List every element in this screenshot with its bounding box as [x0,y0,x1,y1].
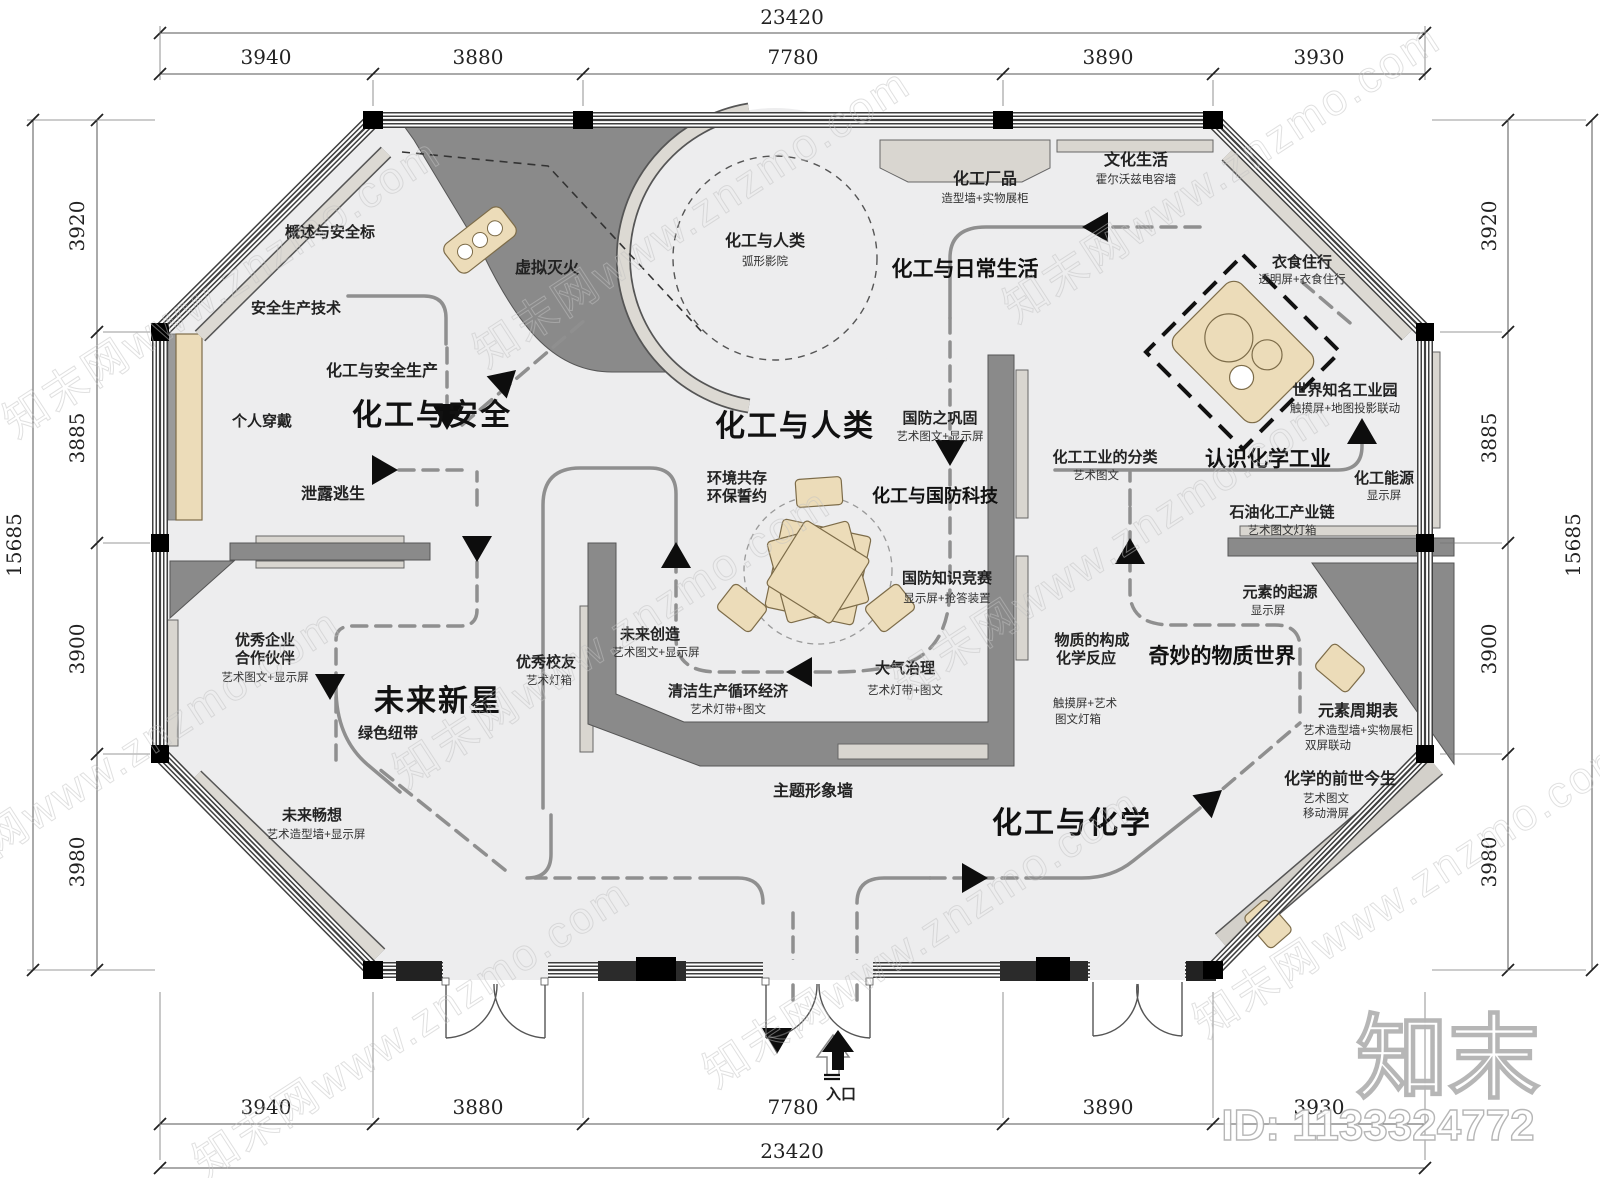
label-energy-sub: 显示屏 [1367,489,1402,502]
label-entrance: 入口 [826,1086,856,1103]
label-periodic-sub2: 双屏联动 [1305,738,1351,752]
label-matter-1: 物质的构成 [1054,631,1129,649]
dim-left-seg: 3885 [65,413,89,464]
dim-left-seg: 3980 [65,837,89,888]
label-leak-escape: 泄露逃生 [301,484,365,503]
label-green-ribbon: 绿色纽带 [358,724,418,742]
label-matter-sub1: 触摸屏+艺术 [1053,696,1118,710]
label-cinema: 化工与人类 [725,231,806,250]
label-element-origin-sub: 显示屏 [1251,604,1286,617]
site-branding: 知末 ID: 1133324772 [1221,1008,1540,1150]
dim-top-seg: 3930 [1294,45,1345,69]
leak-escape-wall [230,543,430,560]
dim-top-seg: 3890 [1083,45,1134,69]
label-defense-solid-sub: 艺术图文+显示屏 [896,429,983,443]
dim-right-seg: 3920 [1477,201,1501,252]
label-products-sub: 造型墙+实物展柜 [941,191,1028,205]
label-future-vision-sub: 艺术造型墙+显示屏 [267,827,366,841]
dim-top-seg: 3940 [241,45,292,69]
dim-top-total: 23420 [760,5,824,29]
label-future-vision: 未来畅想 [281,806,342,824]
label-defense-quiz: 国防知识竞赛 [902,569,993,587]
label-personal-wear: 个人穿戴 [231,412,292,430]
label-element-origin: 元素的起源 [1242,583,1317,601]
dim-left-total: 15685 [2,513,26,577]
label-petro-sub: 艺术图文灯箱 [1248,523,1317,537]
label-defense-solid: 国防之巩固 [902,409,977,427]
door-right [1093,982,1182,1036]
label-petro: 石油化工产业链 [1228,503,1335,521]
label-energy: 化工能源 [1354,469,1414,487]
dim-right-total: 15685 [1561,513,1585,577]
zone-wonder-world: 奇妙的物质世界 [1149,644,1296,668]
label-periodic: 元素周期表 [1318,701,1399,720]
label-clothing: 衣食住行 [1272,253,1332,271]
dim-top-seg: 7780 [768,45,819,69]
label-theme-wall: 主题形象墙 [773,781,853,800]
label-safe-tech: 安全生产技术 [251,299,341,317]
dim-top-seg: 3880 [453,45,504,69]
label-defense-quiz-sub: 显示屏+抢答装置 [903,591,990,605]
label-history: 化学的前世今生 [1284,769,1396,788]
label-products: 化工厂品 [953,169,1017,188]
label-clothing-sub: 透明屏+衣食住行 [1258,272,1345,286]
label-history-sub2: 移动滑屏 [1303,807,1349,820]
label-classify: 化工工业的分类 [1052,448,1158,466]
dim-right-seg: 3900 [1477,624,1501,675]
label-env-2: 环保誓约 [707,487,767,505]
label-matter-2: 化学反应 [1056,649,1116,667]
zone-humanity: 化工与人类 [715,410,875,443]
dim-bottom-total: 23420 [760,1139,824,1163]
label-periodic-sub1: 艺术造型墙+实物展柜 [1303,723,1413,737]
dim-right-seg: 3885 [1477,413,1501,464]
zone-defense-tech: 化工与国防科技 [872,485,999,506]
znzmo-logo: 知末 [1356,1008,1540,1110]
dim-left-seg: 3900 [65,624,89,675]
dim-bottom-seg: 3880 [453,1095,504,1119]
floorplan-canvas: 23420 3940 3880 7780 3890 3930 3940 3880… [0,0,1600,1178]
label-env-1: 环境共存 [707,469,767,487]
dim-bottom-seg: 3890 [1083,1095,1134,1119]
floorplan-drawing: 23420 3940 3880 7780 3890 3930 3940 3880… [0,0,1600,1178]
zone-safety: 化工与安全 [352,398,512,432]
label-matter-sub2: 图文灯箱 [1055,712,1101,726]
label-cinema-sub: 弧形影院 [742,254,788,268]
label-classify-sub: 艺术图文 [1073,468,1119,482]
label-safe-prod: 化工与安全生产 [326,361,438,380]
dim-left-seg: 3920 [65,201,89,252]
label-clean-sub: 艺术灯带+图文 [690,702,766,716]
culture-wall [1057,140,1213,152]
dimensions-top: 23420 3940 3880 7780 3890 3930 [154,5,1431,106]
entrance-arrow [817,1030,854,1079]
label-clean: 清洁生产循环经济 [668,682,789,700]
label-history-sub1: 艺术图文 [1303,791,1349,805]
image-id: ID: 1133324772 [1221,1101,1534,1150]
dim-bottom-seg: 7780 [768,1095,819,1119]
label-culture: 文化生活 [1104,150,1168,169]
